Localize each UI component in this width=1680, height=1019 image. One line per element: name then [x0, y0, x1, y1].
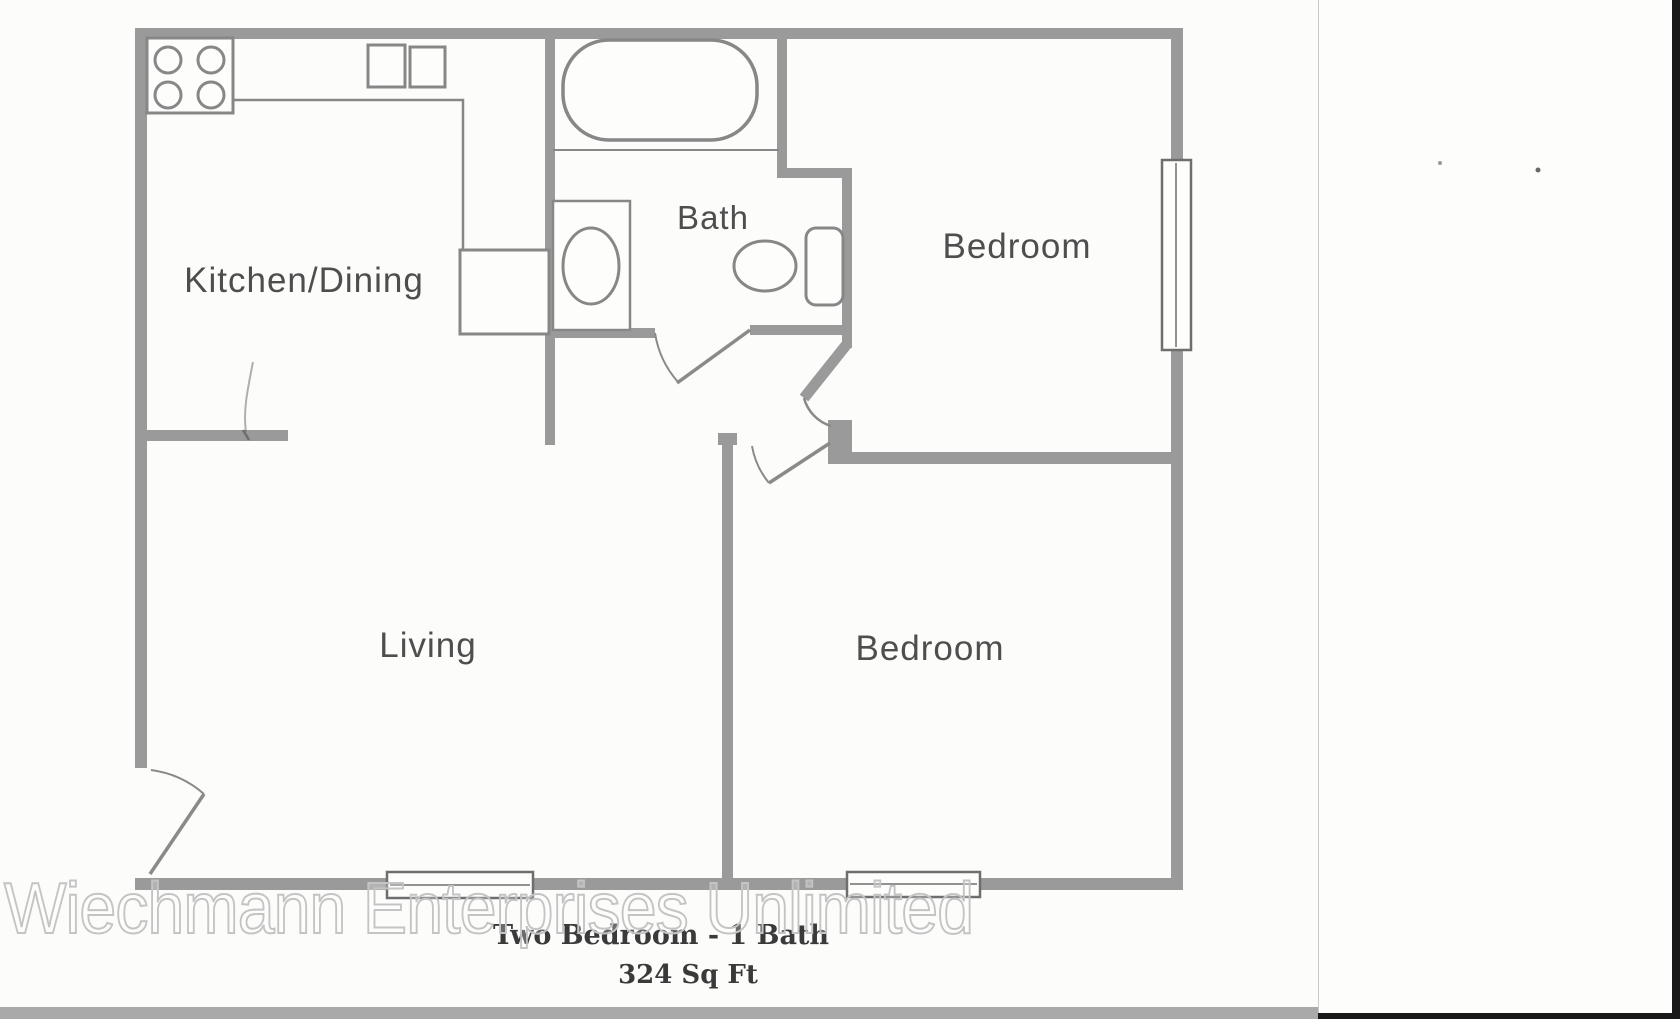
room-label-living: Living — [379, 626, 476, 666]
bathtub-icon — [563, 40, 757, 140]
bedroom2-door-leaf — [769, 443, 830, 483]
dust-speck — [1438, 161, 1442, 165]
interior-walls — [147, 28, 1183, 878]
toilet-bowl-icon — [734, 241, 796, 291]
room-label-bedroom-bottom: Bedroom — [855, 629, 1004, 669]
wall-bedroom-divider — [845, 452, 1183, 464]
sink-basin-icon — [410, 47, 445, 87]
floor-plan-drawing — [0, 0, 1680, 1019]
watermark-text: Wiechmann Enterprises Unlimited — [4, 868, 973, 950]
bath-door-swing — [655, 333, 678, 382]
wall-bath-right-upper — [777, 28, 787, 178]
toilet-tank-icon — [806, 228, 843, 305]
room-label-bath: Bath — [677, 199, 749, 237]
bath-fixtures — [553, 40, 843, 330]
scan-border-right — [1672, 0, 1680, 1019]
bedroom1-door-swing — [804, 398, 831, 426]
plan-area-text: 324 Sq Ft — [618, 960, 758, 990]
room-label-kitchen-dining: Kitchen/Dining — [184, 261, 424, 301]
counter-edge — [233, 100, 463, 250]
room-label-bedroom-top: Bedroom — [942, 227, 1091, 267]
scanner-shadow — [0, 1007, 1318, 1019]
wall-bath-jog — [777, 168, 852, 178]
scan-marks — [243, 161, 1541, 440]
wall-left — [135, 28, 147, 768]
sink-basin-icon — [368, 45, 405, 87]
dust-speck — [1536, 168, 1541, 173]
entry-door-swing — [151, 770, 204, 794]
wall-bath-bottom-right — [750, 325, 852, 335]
entry-door-leaf — [150, 794, 204, 874]
wall-living-bedroom2 — [722, 440, 733, 878]
scan-page-edge — [1318, 0, 1319, 1013]
wall-top — [135, 28, 1183, 39]
bedroom2-door-swing — [752, 446, 769, 483]
scan-border-bottom — [1318, 1013, 1680, 1019]
bath-door-leaf — [677, 330, 750, 383]
wall-kitchen-living-stub — [147, 430, 288, 441]
refrigerator-icon — [460, 250, 549, 334]
wall-chamfer — [804, 344, 847, 398]
pen-smudge — [245, 362, 253, 432]
